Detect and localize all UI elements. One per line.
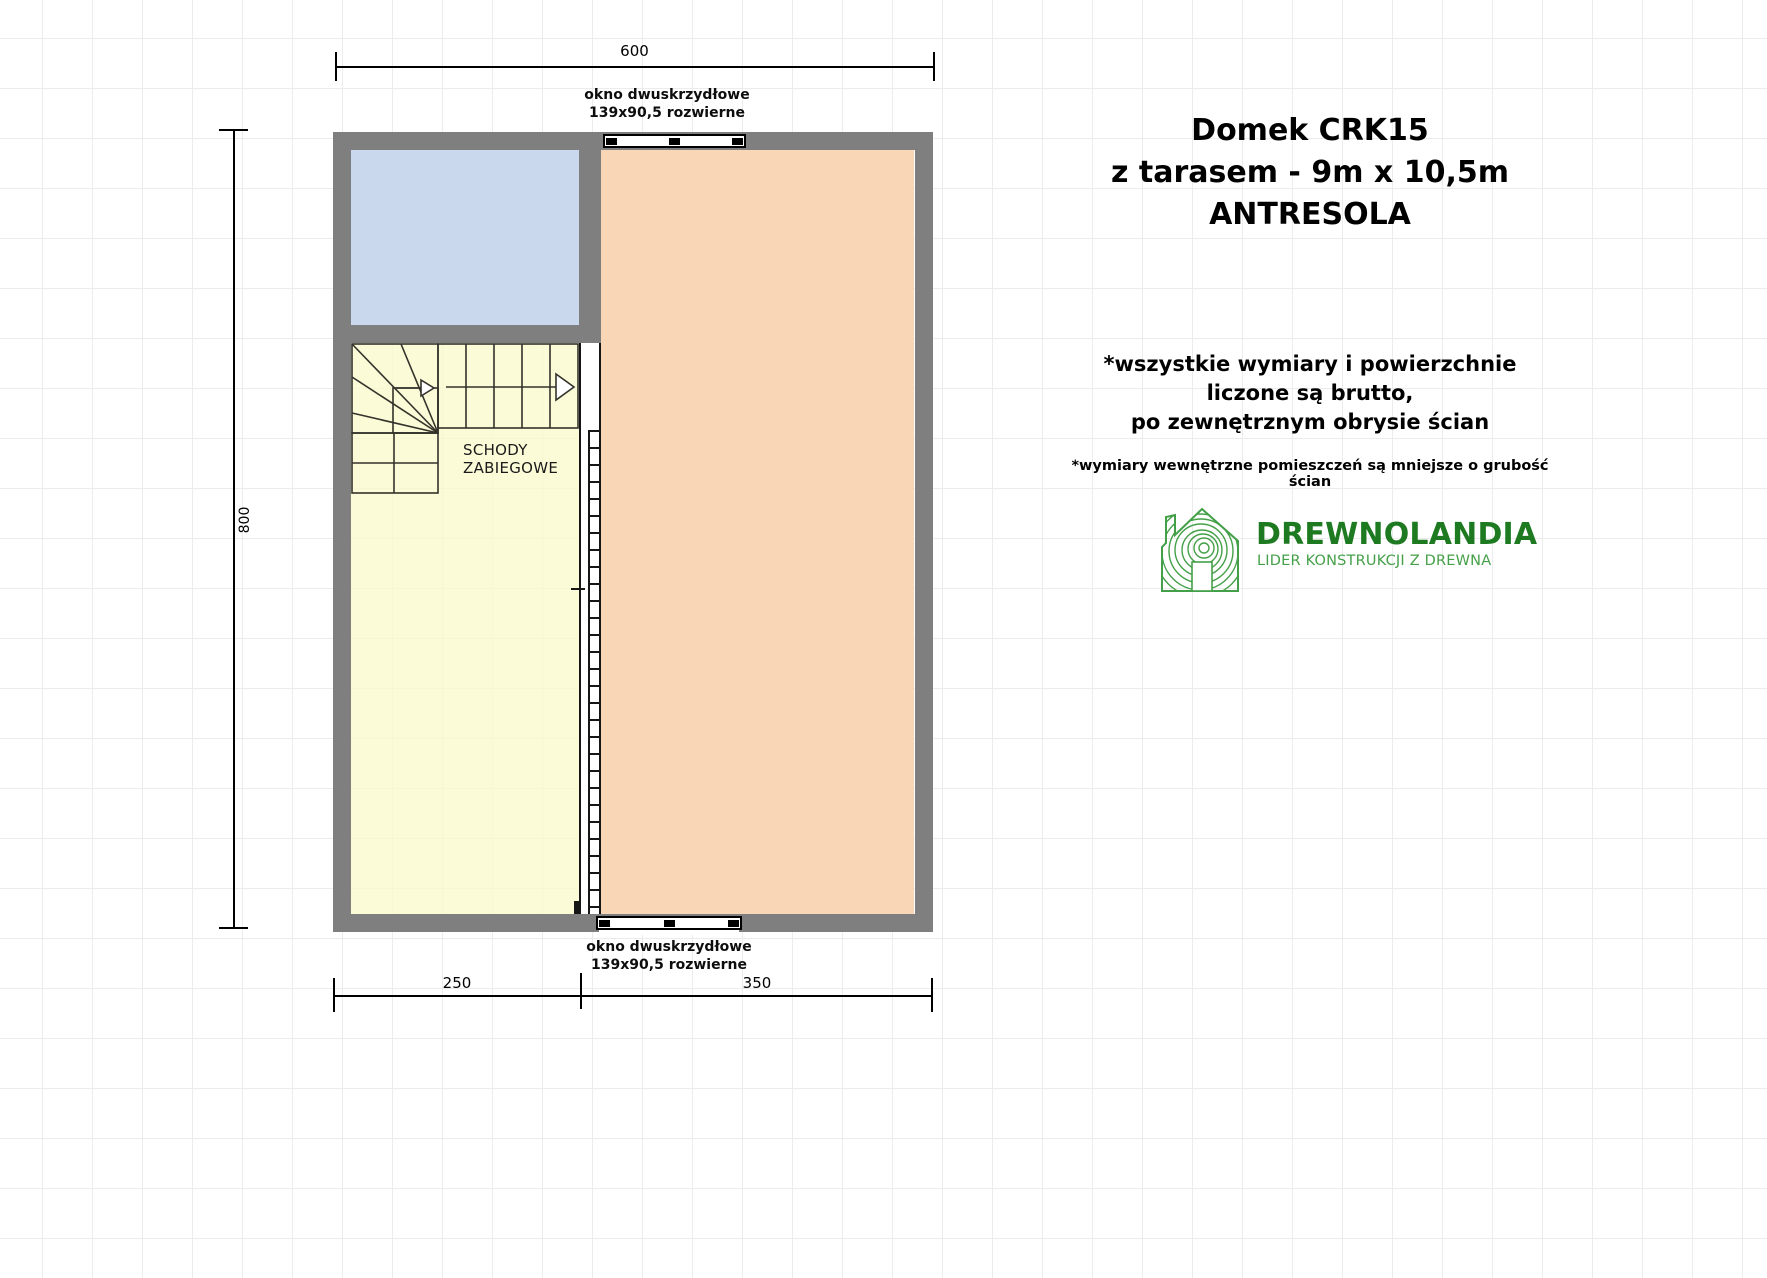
window-bottom-label-line2: 139x90,5 rozwierne [539,956,799,974]
drewnolandia-house-icon [1155,506,1245,594]
stairs-label: SCHODY ZABIEGOWE [463,441,558,477]
railing-end-post [574,901,580,914]
dim-left-tick-bottom [219,927,248,929]
railing-joint-tick [571,588,585,590]
interior-wall-vertical [579,150,601,325]
dim-bottom-line [333,995,933,997]
window-bottom-label-line1: okno dwuskrzydłowe [539,938,799,956]
dim-bottom-right-label: 350 [581,974,933,992]
room-blue [351,150,579,325]
mezzanine-railing [579,430,601,914]
dim-bottom-left-label: 250 [333,974,581,992]
room-open-space [601,150,914,914]
floorplan-canvas: SCHODY ZABIEGOWE 600 800 250 350 okno dw… [0,0,1767,1278]
window-bottom-symbol [596,916,742,930]
window-mullion [664,920,675,927]
interior-wall-horizontal [351,325,601,343]
window-mullion [599,920,610,927]
window-top-label: okno dwuskrzydłowe 139x90,5 rozwierne [537,86,797,122]
window-top-label-line1: okno dwuskrzydłowe [537,86,797,104]
dim-top-line [335,66,934,68]
dim-left-line [233,129,235,929]
title-line1: Domek CRK15 [1085,110,1535,152]
window-mullion [669,138,680,145]
dim-left-label: 800 [237,498,253,542]
title-line3: ANTRESOLA [1085,194,1535,236]
dim-left-tick-top [219,129,248,131]
window-mullion [606,138,617,145]
logo-tagline: LIDER KONSTRUKCJI Z DREWNA [1257,553,1557,569]
stair-partition-wall [579,343,601,430]
dim-top-label: 600 [335,42,934,60]
window-bottom-label: okno dwuskrzydłowe 139x90,5 rozwierne [539,938,799,974]
notes-block: *wszystkie wymiary i powierzchnie liczon… [1085,350,1535,437]
logo-name: DREWNOLANDIA [1256,517,1556,552]
window-mullion [728,920,739,927]
note-line2: liczone są brutto, [1085,379,1535,408]
window-top-label-line2: 139x90,5 rozwierne [537,104,797,122]
small-note: *wymiary wewnętrzne pomieszczeń są mniej… [1060,458,1560,490]
railing-balusters [588,430,601,914]
title-line2: z tarasem - 9m x 10,5m [1085,152,1535,194]
window-top-symbol [603,134,746,148]
window-bottom-sill [599,930,739,935]
note-line3: po zewnętrznym obrysie ścian [1085,408,1535,437]
page-title: Domek CRK15 z tarasem - 9m x 10,5m ANTRE… [1085,110,1535,236]
stairs-label-line1: SCHODY [463,441,558,459]
stairs-label-line2: ZABIEGOWE [463,459,558,477]
window-mullion [732,138,743,145]
note-line1: *wszystkie wymiary i powierzchnie [1085,350,1535,379]
